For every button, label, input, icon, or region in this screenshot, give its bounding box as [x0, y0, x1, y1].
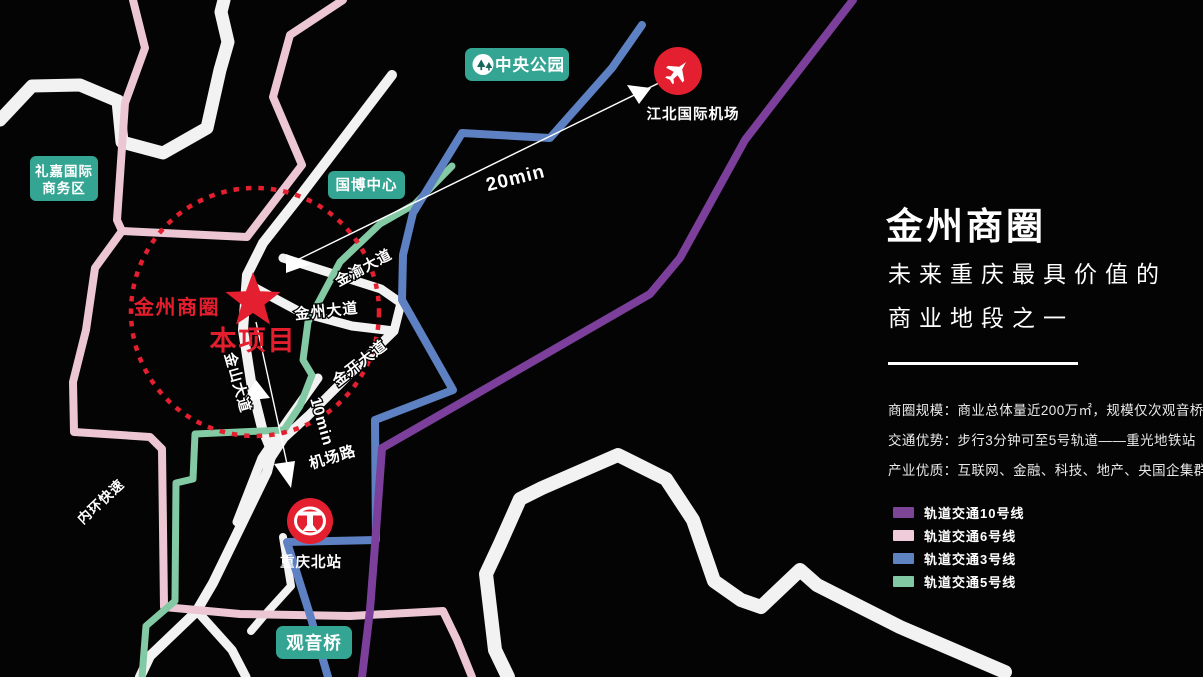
tag-lijia: 礼嘉国际 商务区: [30, 156, 98, 201]
subtitle-line-1: 未来重庆最具价值的: [888, 255, 1167, 289]
label-jinkai-avenue: 金开大道: [328, 336, 390, 390]
tag-guanyinqiao: 观音桥: [276, 626, 352, 659]
station-poi: 重庆北站: [280, 498, 342, 571]
road-network: [0, 0, 1005, 677]
desc-scale: 商圈规模：商业总体量近200万㎡，规模仅次观音桥: [888, 399, 1203, 419]
label-expo-center: 国博中心: [336, 176, 398, 194]
road-branch-south: [197, 611, 246, 677]
label-inner-ring: 内环快速: [74, 476, 127, 527]
line6-swatch: [893, 530, 914, 541]
divider: [888, 362, 1078, 365]
route-arrows: [243, 85, 651, 488]
label-business-circle: 金州商圈: [133, 295, 220, 319]
label-time-10min: 10min: [306, 395, 336, 448]
line5-label: 轨道交通5号线: [924, 572, 1016, 591]
line10-swatch: [893, 507, 914, 518]
road-jinyu-jinkai: [269, 258, 401, 461]
desc-industry: 产业优质：互联网、金融、科技、地产、央国企集群: [888, 459, 1203, 479]
label-jinzhou-avenue: 金州大道: [293, 299, 360, 324]
label-lijia-line1: 礼嘉国际: [35, 163, 93, 179]
metro-line-3: [287, 25, 642, 677]
line6-label: 轨道交通6号线: [924, 526, 1016, 545]
subtitle-line-2: 商业地段之一: [888, 299, 1074, 333]
airport-poi: 江北国际机场: [647, 47, 740, 123]
arrow-near-airport: [627, 85, 651, 104]
legend-row-line3: 轨道交通3号线: [893, 552, 1024, 564]
line10-label: 轨道交通10号线: [924, 503, 1024, 522]
label-airport-road: 机场路: [307, 442, 358, 473]
arrow-route-station: [274, 461, 295, 488]
tag-central-park: 中央公园: [465, 48, 569, 81]
label-project: 本项目: [210, 326, 297, 356]
label-guanyinqiao: 观音桥: [286, 633, 342, 653]
label-time-20min: 20min: [484, 161, 547, 196]
label-airport: 江北国际机场: [647, 105, 740, 123]
legend-row-line6: 轨道交通6号线: [893, 529, 1024, 541]
metro-legend: 轨道交通10号线 轨道交通6号线 轨道交通3号线 轨道交通5号线: [893, 506, 1024, 598]
label-lijia-line2: 商务区: [42, 180, 86, 196]
project-star-icon: [225, 272, 280, 325]
info-panel: 金州商圈 未来重庆最具价值的 商业地段之一 商圈规模：商业总体量近200万㎡，规…: [886, 0, 1203, 677]
tag-expo-center: 国博中心: [328, 171, 405, 199]
promo-map-page: 金渝大道 金州大道 金开大道 金山大道 机场路 内环快速 20min 10min…: [0, 0, 1203, 677]
road-top-left: [0, 0, 228, 153]
label-north-station: 重庆北站: [280, 553, 342, 571]
line5-swatch: [893, 576, 914, 587]
desc-traffic: 交通优势：步行3分钟可至5号轨道——重光地铁站: [888, 429, 1196, 449]
metro-line-10: [362, 0, 853, 677]
label-central-park: 中央公园: [495, 55, 565, 75]
legend-row-line5: 轨道交通5号线: [893, 575, 1024, 587]
legend-row-line10: 轨道交通10号线: [893, 506, 1024, 518]
line3-label: 轨道交通3号线: [924, 549, 1016, 568]
page-title: 金州商圈: [886, 196, 1046, 250]
line3-swatch: [893, 553, 914, 564]
